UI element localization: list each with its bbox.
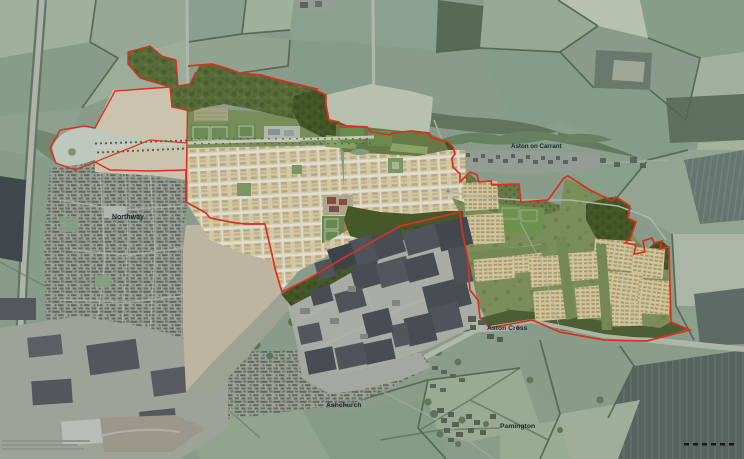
- svg-text:Northway: Northway: [112, 214, 144, 221]
- svg-text:Aston Cross: Aston Cross: [487, 325, 528, 332]
- svg-text:Ashchurch: Ashchurch: [326, 402, 362, 409]
- svg-text:Aston on Carrant: Aston on Carrant: [511, 143, 562, 150]
- svg-text:Pamington: Pamington: [500, 423, 535, 430]
